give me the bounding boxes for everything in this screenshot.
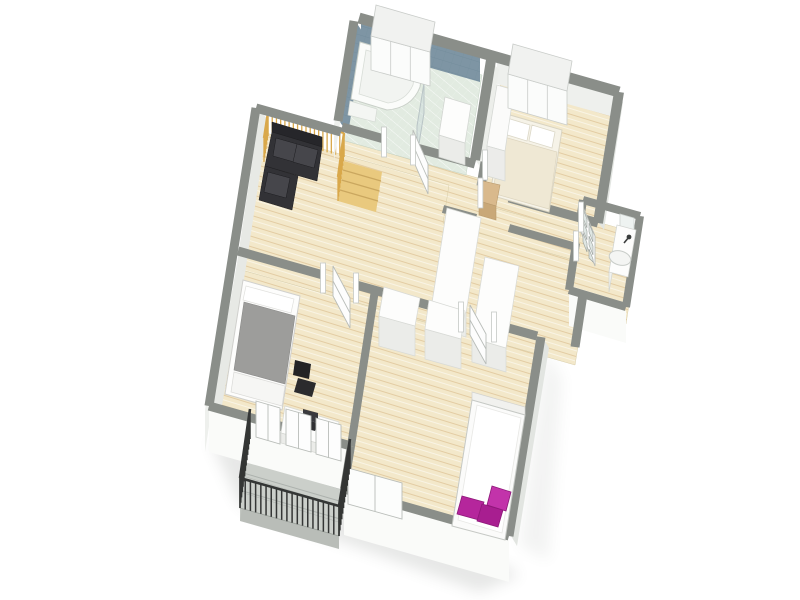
door-jamb: [478, 178, 483, 208]
door-jamb: [579, 202, 584, 232]
wardrobe-side: [487, 146, 505, 181]
floorplan-canvas: 3D rendered apartment floor plan: [0, 0, 800, 600]
door-jamb: [321, 263, 326, 293]
gray-bed-duvet: [234, 302, 295, 384]
door-jamb: [483, 150, 488, 180]
door-jamb: [492, 312, 497, 342]
bath-vanity-top: [439, 97, 471, 143]
wall-living-north: [256, 108, 341, 132]
door-jamb: [459, 302, 464, 332]
door-jamb: [382, 127, 387, 157]
floorplan-rendering: 3D rendered apartment floor plan: [0, 0, 800, 600]
door-jamb: [574, 231, 579, 261]
door-jamb: [411, 135, 416, 165]
door-jamb: [354, 273, 359, 303]
